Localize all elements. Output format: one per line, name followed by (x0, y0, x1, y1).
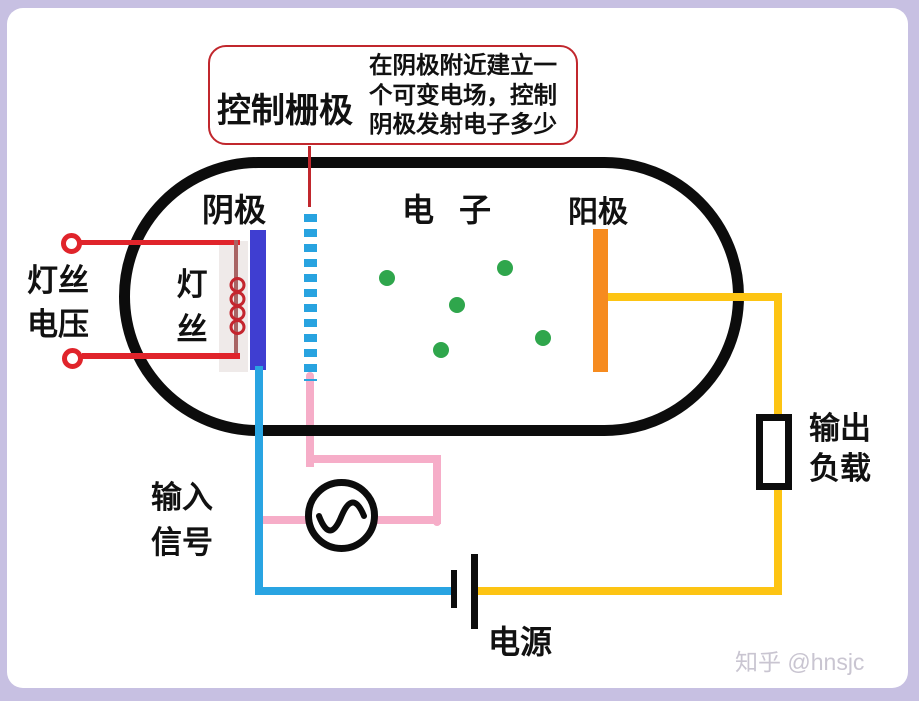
filament-voltage-label: 灯丝 电压 (27, 259, 89, 347)
electron-dot (449, 297, 465, 313)
battery-negative-plate (451, 570, 457, 608)
electron-dot (433, 342, 449, 358)
control-grid-description: 在阴极附近建立一 个可变电场，控制 阴极发射电子多少 (369, 51, 557, 140)
control-grid-dashes (304, 214, 317, 381)
cathode-label: 阴极 (202, 185, 266, 231)
battery-positive-plate (471, 554, 478, 629)
filament-label-line2: 丝 (170, 307, 214, 352)
filament-wire-bottom (82, 353, 240, 359)
output-load-label: 输出 负载 (809, 409, 871, 489)
filament-voltage-line1: 灯丝 (27, 259, 89, 303)
anode-wire-horizontal (608, 293, 782, 301)
callout-connector-line (308, 146, 311, 207)
description-line-3: 阴极发射电子多少 (369, 110, 557, 140)
control-grid-title: 控制栅极 (217, 83, 353, 132)
diagram-canvas: 控制栅极 在阴极附近建立一 个可变电场，控制 阴极发射电子多少 阴极 电子 阳极 (0, 0, 919, 701)
input-signal-label: 输入 信号 (151, 475, 213, 565)
filament-label: 灯 丝 (170, 262, 214, 352)
cathode-bar (250, 230, 266, 370)
filament-terminal-bottom (62, 348, 83, 369)
cathode-wire-horizontal (255, 587, 452, 595)
electron-dot (497, 260, 513, 276)
description-line-2: 个可变电场，控制 (369, 81, 557, 111)
sine-wave-icon (305, 479, 378, 552)
source-wire-right (375, 516, 441, 524)
anode-wire-vertical-upper (774, 293, 782, 418)
electron-dot (535, 330, 551, 346)
anode-wire-vertical-lower (774, 488, 782, 595)
power-supply-label: 电源 (488, 617, 552, 663)
filament-coil (224, 277, 252, 335)
watermark: 知乎 @hnsjc (735, 643, 864, 677)
cathode-wire-vertical (255, 366, 263, 595)
filament-label-line1: 灯 (170, 262, 214, 307)
load-resistor (756, 414, 792, 490)
input-signal-line2: 信号 (151, 520, 213, 565)
filament-terminal-top (61, 233, 82, 254)
output-load-line1: 输出 (809, 409, 871, 449)
anode-label: 阳极 (568, 187, 628, 231)
electrons-label: 电子 (402, 185, 516, 231)
filament-voltage-line2: 电压 (27, 303, 89, 347)
grid-wire-horizontal-top (306, 455, 441, 463)
filament-wire-top (78, 240, 240, 245)
description-line-1: 在阴极附近建立一 (369, 51, 557, 81)
anode-bar (593, 229, 608, 372)
input-signal-line1: 输入 (151, 475, 213, 520)
power-wire-horizontal (478, 587, 782, 595)
source-wire-left (259, 516, 309, 524)
output-load-line2: 负载 (809, 449, 871, 489)
electron-dot (379, 270, 395, 286)
